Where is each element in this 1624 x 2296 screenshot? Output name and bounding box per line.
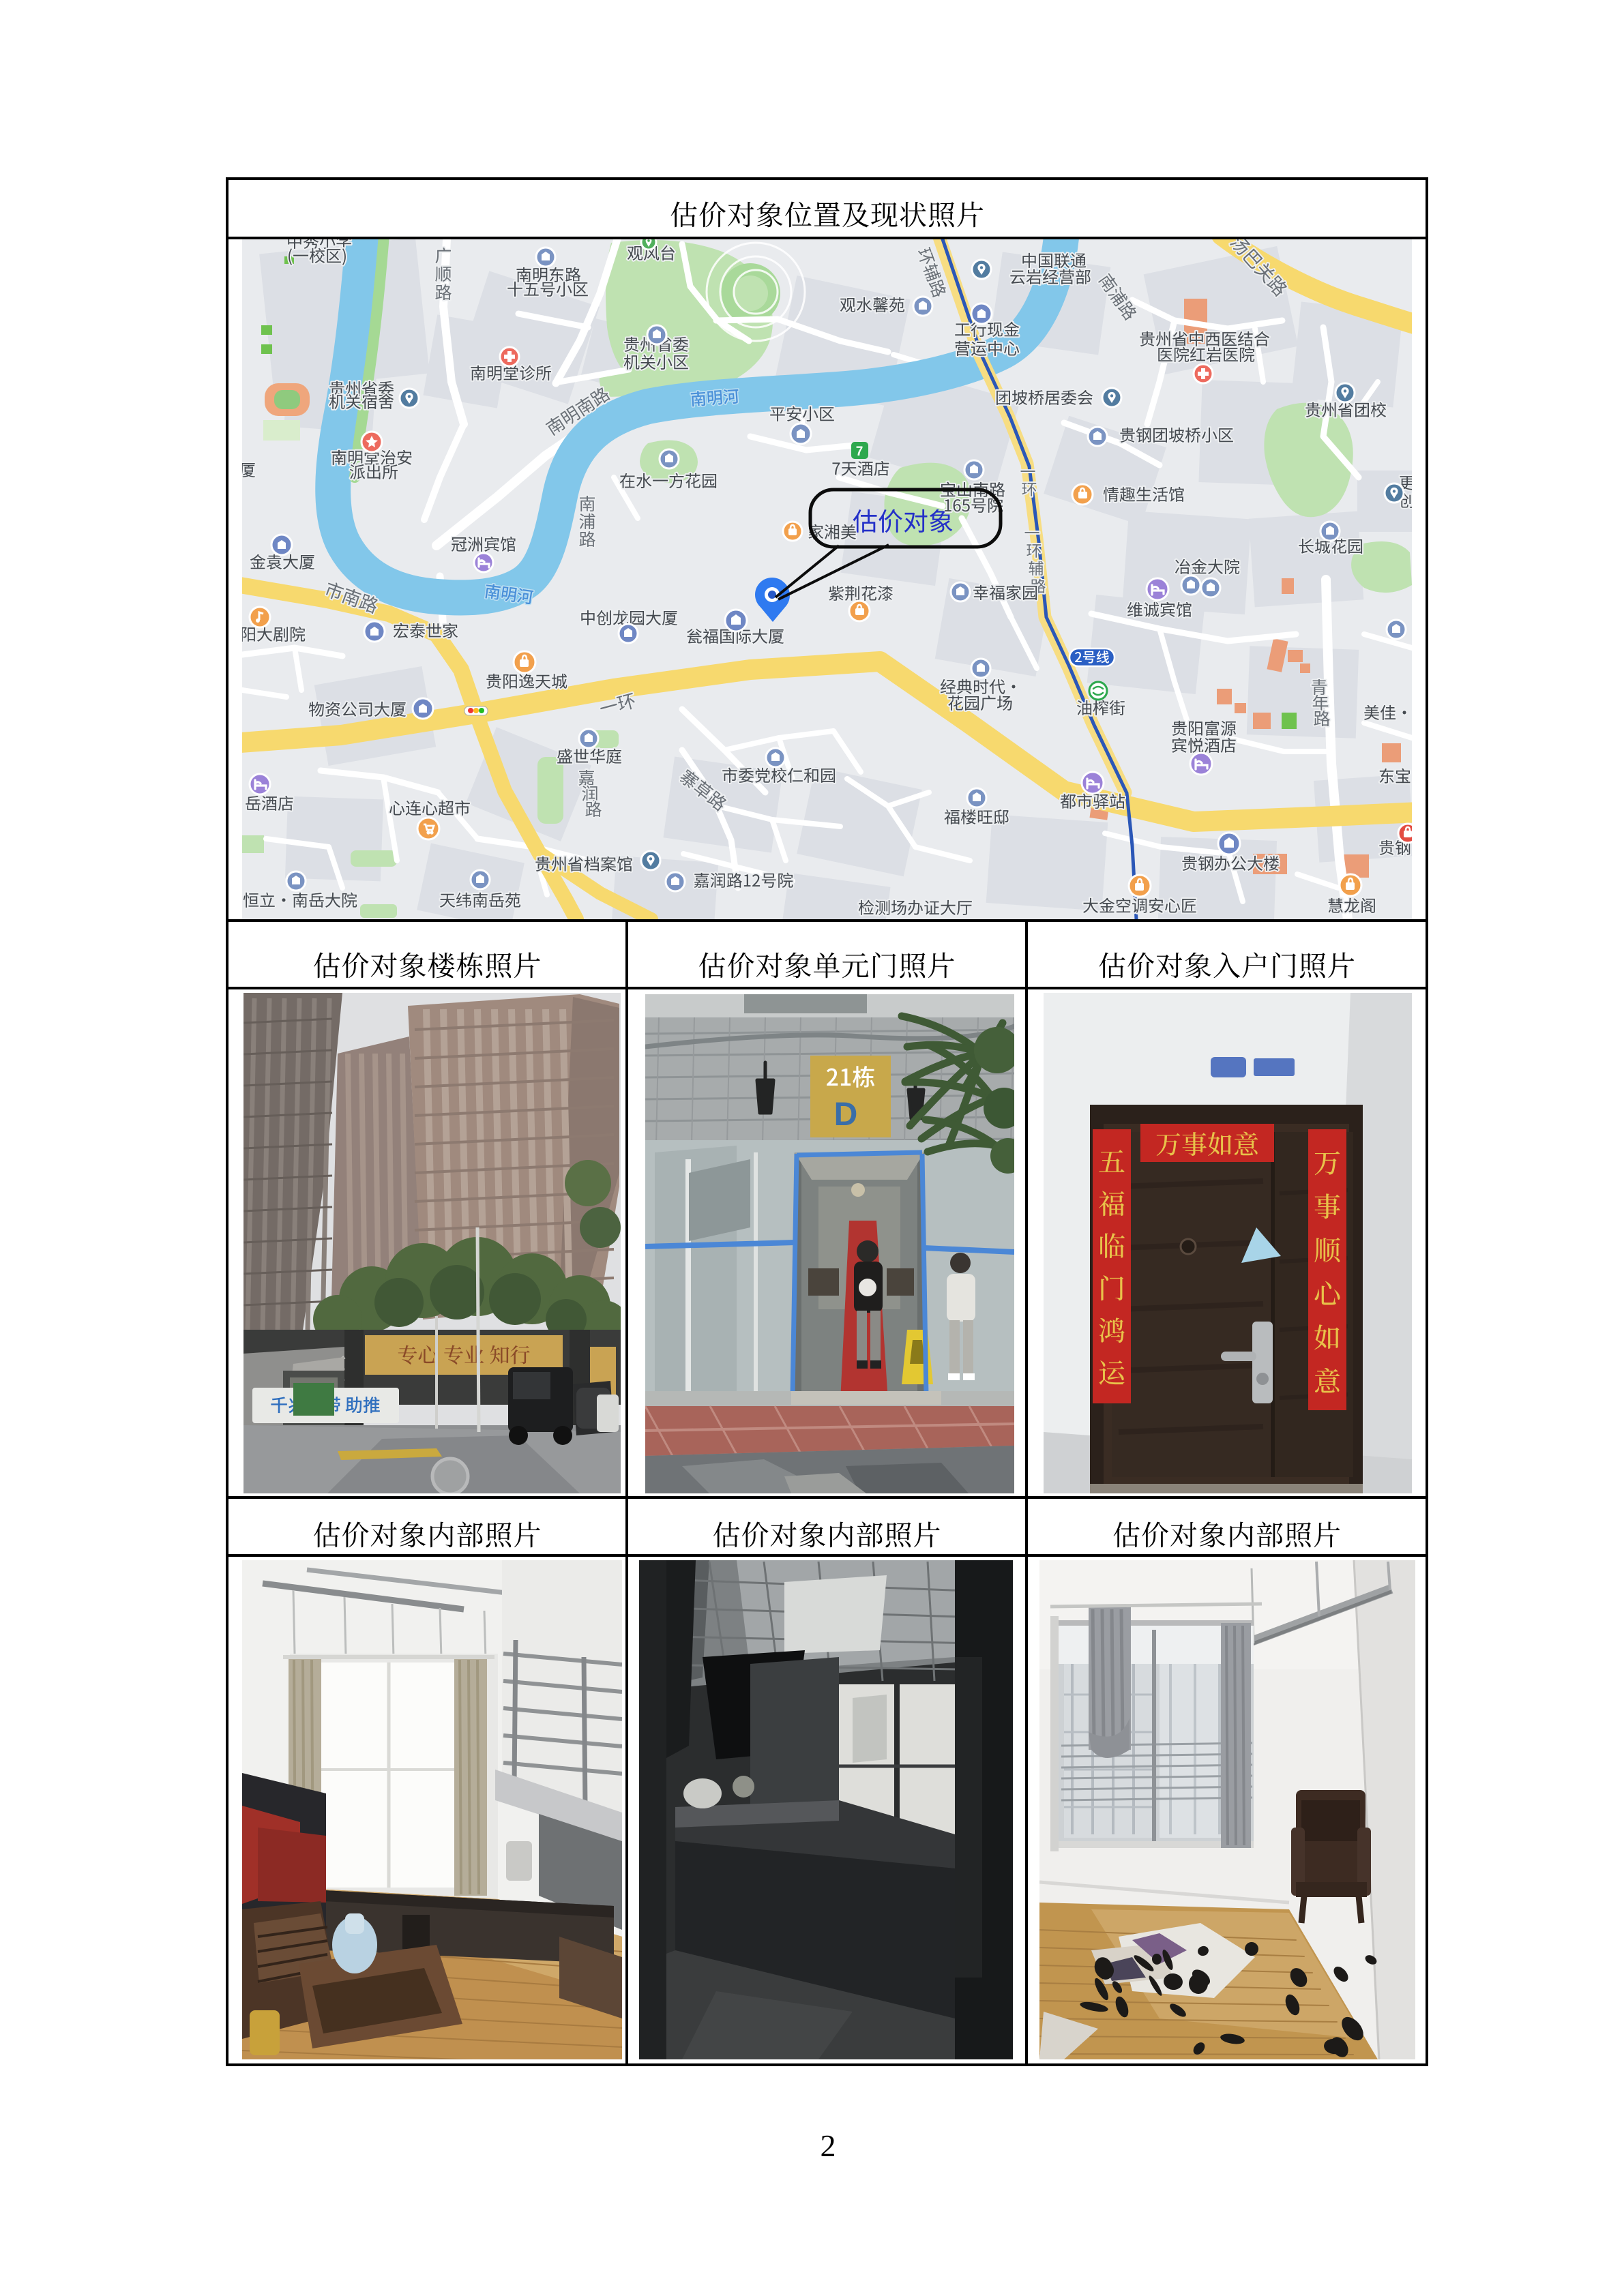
svg-text:D: D [834,1097,858,1133]
svg-text:2: 2 [821,2128,836,2163]
svg-text:7: 7 [856,445,863,459]
